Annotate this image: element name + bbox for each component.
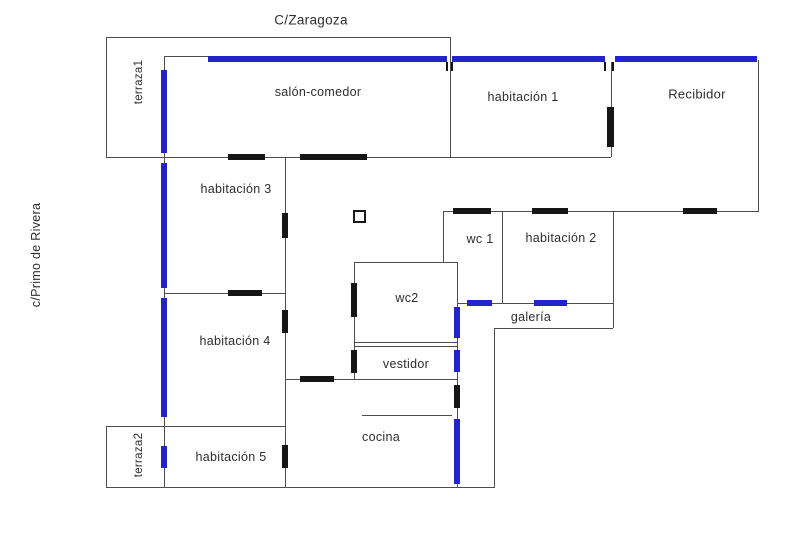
jamb-tick-salon-hab1-left bbox=[446, 62, 448, 71]
door-vestidor bbox=[351, 350, 357, 373]
wall-cocina-right bbox=[494, 328, 495, 487]
street-label-primo-de-rivera: c/Primo de Rivera bbox=[29, 203, 43, 307]
window-salon-facade bbox=[161, 70, 167, 153]
door-habitacion5 bbox=[282, 445, 288, 468]
window-habitacion2-galeria bbox=[534, 300, 567, 306]
jamb-tick-salon-hab1-right bbox=[451, 62, 453, 71]
wall-bottom-outer bbox=[106, 487, 495, 488]
window-habitacion3-facade bbox=[161, 163, 167, 288]
door-habitacion3 bbox=[282, 213, 288, 238]
wall-terraza2-left bbox=[106, 426, 107, 487]
room-label-habitacion1: habitación 1 bbox=[487, 90, 558, 104]
wall-right-outer bbox=[758, 60, 759, 212]
wall-hab2-right bbox=[613, 211, 614, 328]
wall-wc1-left bbox=[443, 211, 444, 262]
room-label-habitacion3: habitación 3 bbox=[200, 182, 271, 196]
wall-salon-top-corner bbox=[164, 56, 210, 57]
room-label-habitacion2: habitación 2 bbox=[525, 231, 596, 245]
window-recibidor-street bbox=[615, 56, 757, 62]
room-label-cocina: cocina bbox=[362, 430, 400, 444]
wall-terraza1-top bbox=[106, 37, 451, 38]
room-label-galeria: galería bbox=[511, 310, 551, 324]
window-habitacion5-facade bbox=[161, 446, 167, 468]
room-label-terraza1: terraza1 bbox=[133, 60, 145, 105]
door-habitacion2 bbox=[532, 208, 568, 214]
window-salon-street bbox=[208, 56, 447, 62]
wall-wc2-top bbox=[354, 262, 458, 263]
wall-hab3-hab4-div bbox=[164, 293, 285, 294]
wall-vestidor-top-outer bbox=[354, 342, 458, 343]
window-wc1-galeria bbox=[467, 300, 492, 306]
room-label-salon-comedor: salón-comedor bbox=[275, 85, 362, 99]
room-label-terraza2: terraza2 bbox=[133, 433, 145, 478]
door-salon-2 bbox=[300, 154, 367, 160]
room-label-wc2: wc2 bbox=[395, 291, 418, 305]
room-label-wc1: wc 1 bbox=[467, 232, 494, 246]
room-label-vestidor: vestidor bbox=[383, 357, 429, 371]
column-symbol bbox=[353, 210, 366, 223]
wall-vestidor-top-inner bbox=[354, 346, 458, 347]
door-galeria-strip bbox=[454, 385, 460, 408]
wall-hab4-hab5-div bbox=[106, 426, 285, 427]
jamb-tick-hab1-recibidor-left bbox=[604, 62, 606, 71]
window-habitacion4-facade bbox=[161, 298, 167, 417]
room-label-habitacion5: habitación 5 bbox=[195, 450, 266, 464]
room-label-habitacion4: habitación 4 bbox=[199, 334, 270, 348]
door-wc1 bbox=[453, 208, 491, 214]
window-wc2-galeria bbox=[454, 307, 460, 338]
window-habitacion1-street bbox=[452, 56, 605, 62]
door-pasillo-mid bbox=[282, 310, 288, 333]
wall-wc1-hab2-div bbox=[502, 211, 503, 303]
room-label-recibidor: Recibidor bbox=[668, 87, 726, 102]
wall-galeria-bottom bbox=[494, 328, 613, 329]
window-vestidor-galeria bbox=[454, 350, 460, 372]
floor-plan: C/Zaragoza c/Primo de Rivera terraza1 sa… bbox=[0, 0, 810, 540]
door-recibidor bbox=[683, 208, 717, 214]
door-cocina bbox=[300, 376, 334, 382]
jamb-tick-hab1-recibidor-right bbox=[612, 62, 614, 71]
door-salon-1 bbox=[228, 154, 265, 160]
wall-cocina-counter bbox=[362, 415, 452, 416]
door-habitacion1 bbox=[607, 107, 614, 147]
wall-terraza1-left bbox=[106, 37, 107, 158]
door-habitacion4 bbox=[228, 290, 262, 296]
wall-habitacion1-left bbox=[450, 37, 451, 157]
door-wc2 bbox=[351, 283, 357, 317]
window-cocina-galeria bbox=[454, 419, 460, 484]
street-label-zaragoza: C/Zaragoza bbox=[274, 13, 348, 28]
